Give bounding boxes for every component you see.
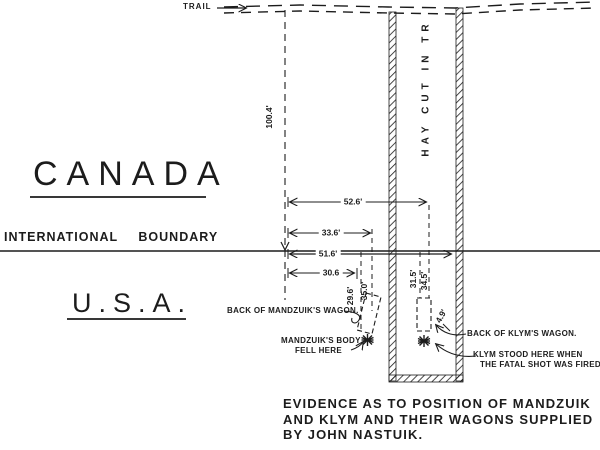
mandzuik-body-label-line2: FELL HERE [295,346,342,355]
caption-line1: EVIDENCE AS TO POSITION OF MANDZUIK [283,396,593,412]
mandzuik-body-star [362,334,374,346]
mandzuik-body-label-line1: MANDZUIK'S BODY [281,336,361,345]
back-of-klym-wagon-label: BACK OF KLYM'S WAGON. [467,329,577,338]
diagram-canvas [0,0,600,450]
hay-cut-right-band [456,8,463,381]
measurement-35-0: 35.0' [359,282,369,301]
hay-cut-bottom-band [389,375,463,382]
klym-wagon-outline [417,298,431,331]
measurement-100-4: 100.4' [264,105,274,128]
klym-stood-here-label-line1: KLYM STOOD HERE WHEN [473,350,583,359]
klym-stood-here-label-line2: THE FATAL SHOT WAS FIRED. [480,360,600,369]
trail-dashed-line-top [224,2,596,8]
trail-dashed-line-bottom [224,8,596,14]
caption-line3: BY JOHN NASTUIK. [283,427,593,443]
hay-cut-left-band [389,12,396,381]
measurement-51-6: 51.6' [316,249,341,259]
usa-label: U.S.A. [72,288,192,319]
evidence-diagram: TRAIL HAY CUT IN TR CANADA INTERNATIONAL… [0,0,600,450]
canada-label: CANADA [33,155,229,194]
trail-label: TRAIL [183,2,212,11]
measurement-52-6: 52.6' [341,197,366,207]
measurement-31-5: 31.5' [408,270,418,289]
measurement-33-6: 33.6' [319,228,344,238]
caption: EVIDENCE AS TO POSITION OF MANDZUIK AND … [283,396,593,443]
measurement-34-5: 34.5' [419,272,429,291]
caption-line2: AND KLYM AND THEIR WAGONS SUPPLIED [283,412,593,428]
hay-cut-label: HAY CUT IN TR [421,19,432,156]
klym-position-star [418,335,430,347]
measurement-29-6: 29.6' [345,287,355,306]
back-of-mandzuik-wagon-label: BACK OF MANDZUIK'S WAGON. [227,306,359,315]
klym-offset-tick [443,324,450,331]
international-boundary-label: INTERNATIONAL BOUNDARY [4,230,218,244]
measurement-30-6: 30.6 [320,268,343,278]
